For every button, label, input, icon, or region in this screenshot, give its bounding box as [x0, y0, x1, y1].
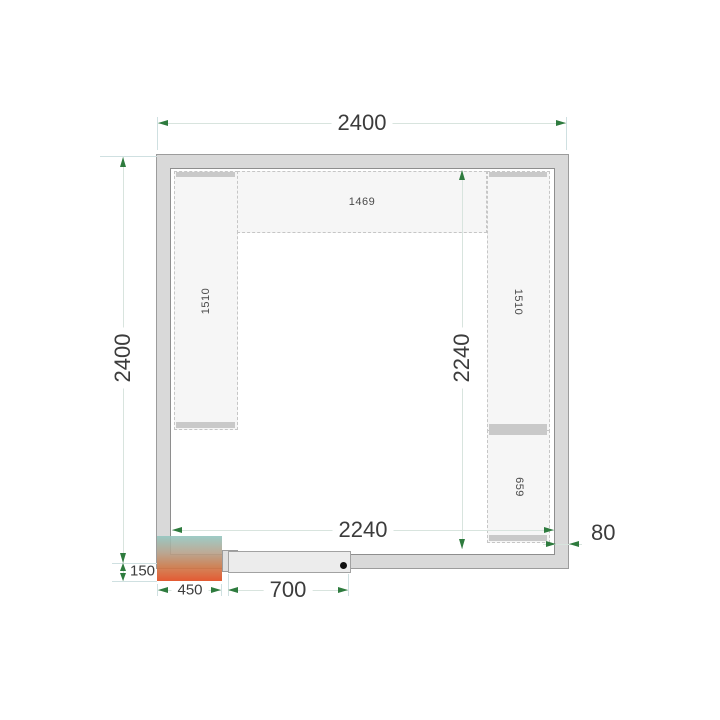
arrow-up-icon	[120, 157, 126, 167]
arrow-left-icon	[158, 120, 168, 126]
shelf-left: 1510	[174, 171, 238, 430]
dim-label-door-width: 700	[264, 577, 313, 603]
arrow-up-icon	[120, 563, 126, 571]
arrow-right-icon	[211, 587, 221, 593]
dim-label-outer-height: 2400	[110, 328, 136, 389]
cooling-unit-block	[157, 536, 222, 581]
shelf-right-lower-top-strip	[489, 430, 547, 435]
shelf-top: 1469	[237, 171, 487, 233]
shelf-right-upper: 1510	[487, 171, 550, 432]
ext-line	[566, 117, 567, 150]
shelf-right-upper-top-strip	[489, 172, 547, 177]
floor-plan-drawing: 1510 1469 1510 659 2400 2400 2240 2240	[0, 0, 720, 720]
shelf-left-depth-label: 1510	[200, 287, 212, 313]
arrow-left-icon	[172, 527, 182, 533]
dim-label-inner-height: 2240	[449, 328, 475, 389]
arrow-right-icon	[546, 541, 556, 547]
shelf-left-bottom-strip	[176, 422, 235, 428]
arrow-right-icon	[338, 587, 348, 593]
door-handle-dot	[340, 562, 347, 569]
shelf-left-top-strip	[176, 172, 235, 177]
dim-label-unit-width: 450	[171, 582, 208, 599]
dim-label-inner-width: 2240	[333, 517, 394, 543]
arrow-left-icon	[158, 587, 168, 593]
arrow-right-icon	[556, 120, 566, 126]
dim-label-wall-thickness: 80	[585, 520, 621, 546]
ext-line	[221, 584, 222, 596]
arrow-down-icon	[459, 539, 465, 549]
shelf-right-upper-depth-label: 1510	[512, 288, 524, 314]
dim-label-unit-height: 150	[128, 563, 157, 580]
ext-line	[348, 574, 349, 596]
shelf-right-lower: 659	[487, 430, 550, 543]
shelf-top-depth-label: 1469	[349, 196, 375, 208]
arrow-left-icon	[228, 587, 238, 593]
arrow-down-icon	[120, 573, 126, 581]
ext-line	[112, 581, 157, 582]
dim-label-outer-width: 2400	[332, 110, 393, 136]
shelf-right-lower-depth-label: 659	[512, 477, 524, 497]
arrow-down-icon	[120, 553, 126, 563]
shelf-right-lower-bottom-strip	[489, 535, 547, 541]
arrow-up-icon	[459, 170, 465, 180]
door-leaf	[228, 551, 351, 573]
arrow-left-icon	[569, 541, 579, 547]
arrow-right-icon	[544, 527, 554, 533]
ext-line	[100, 156, 157, 157]
